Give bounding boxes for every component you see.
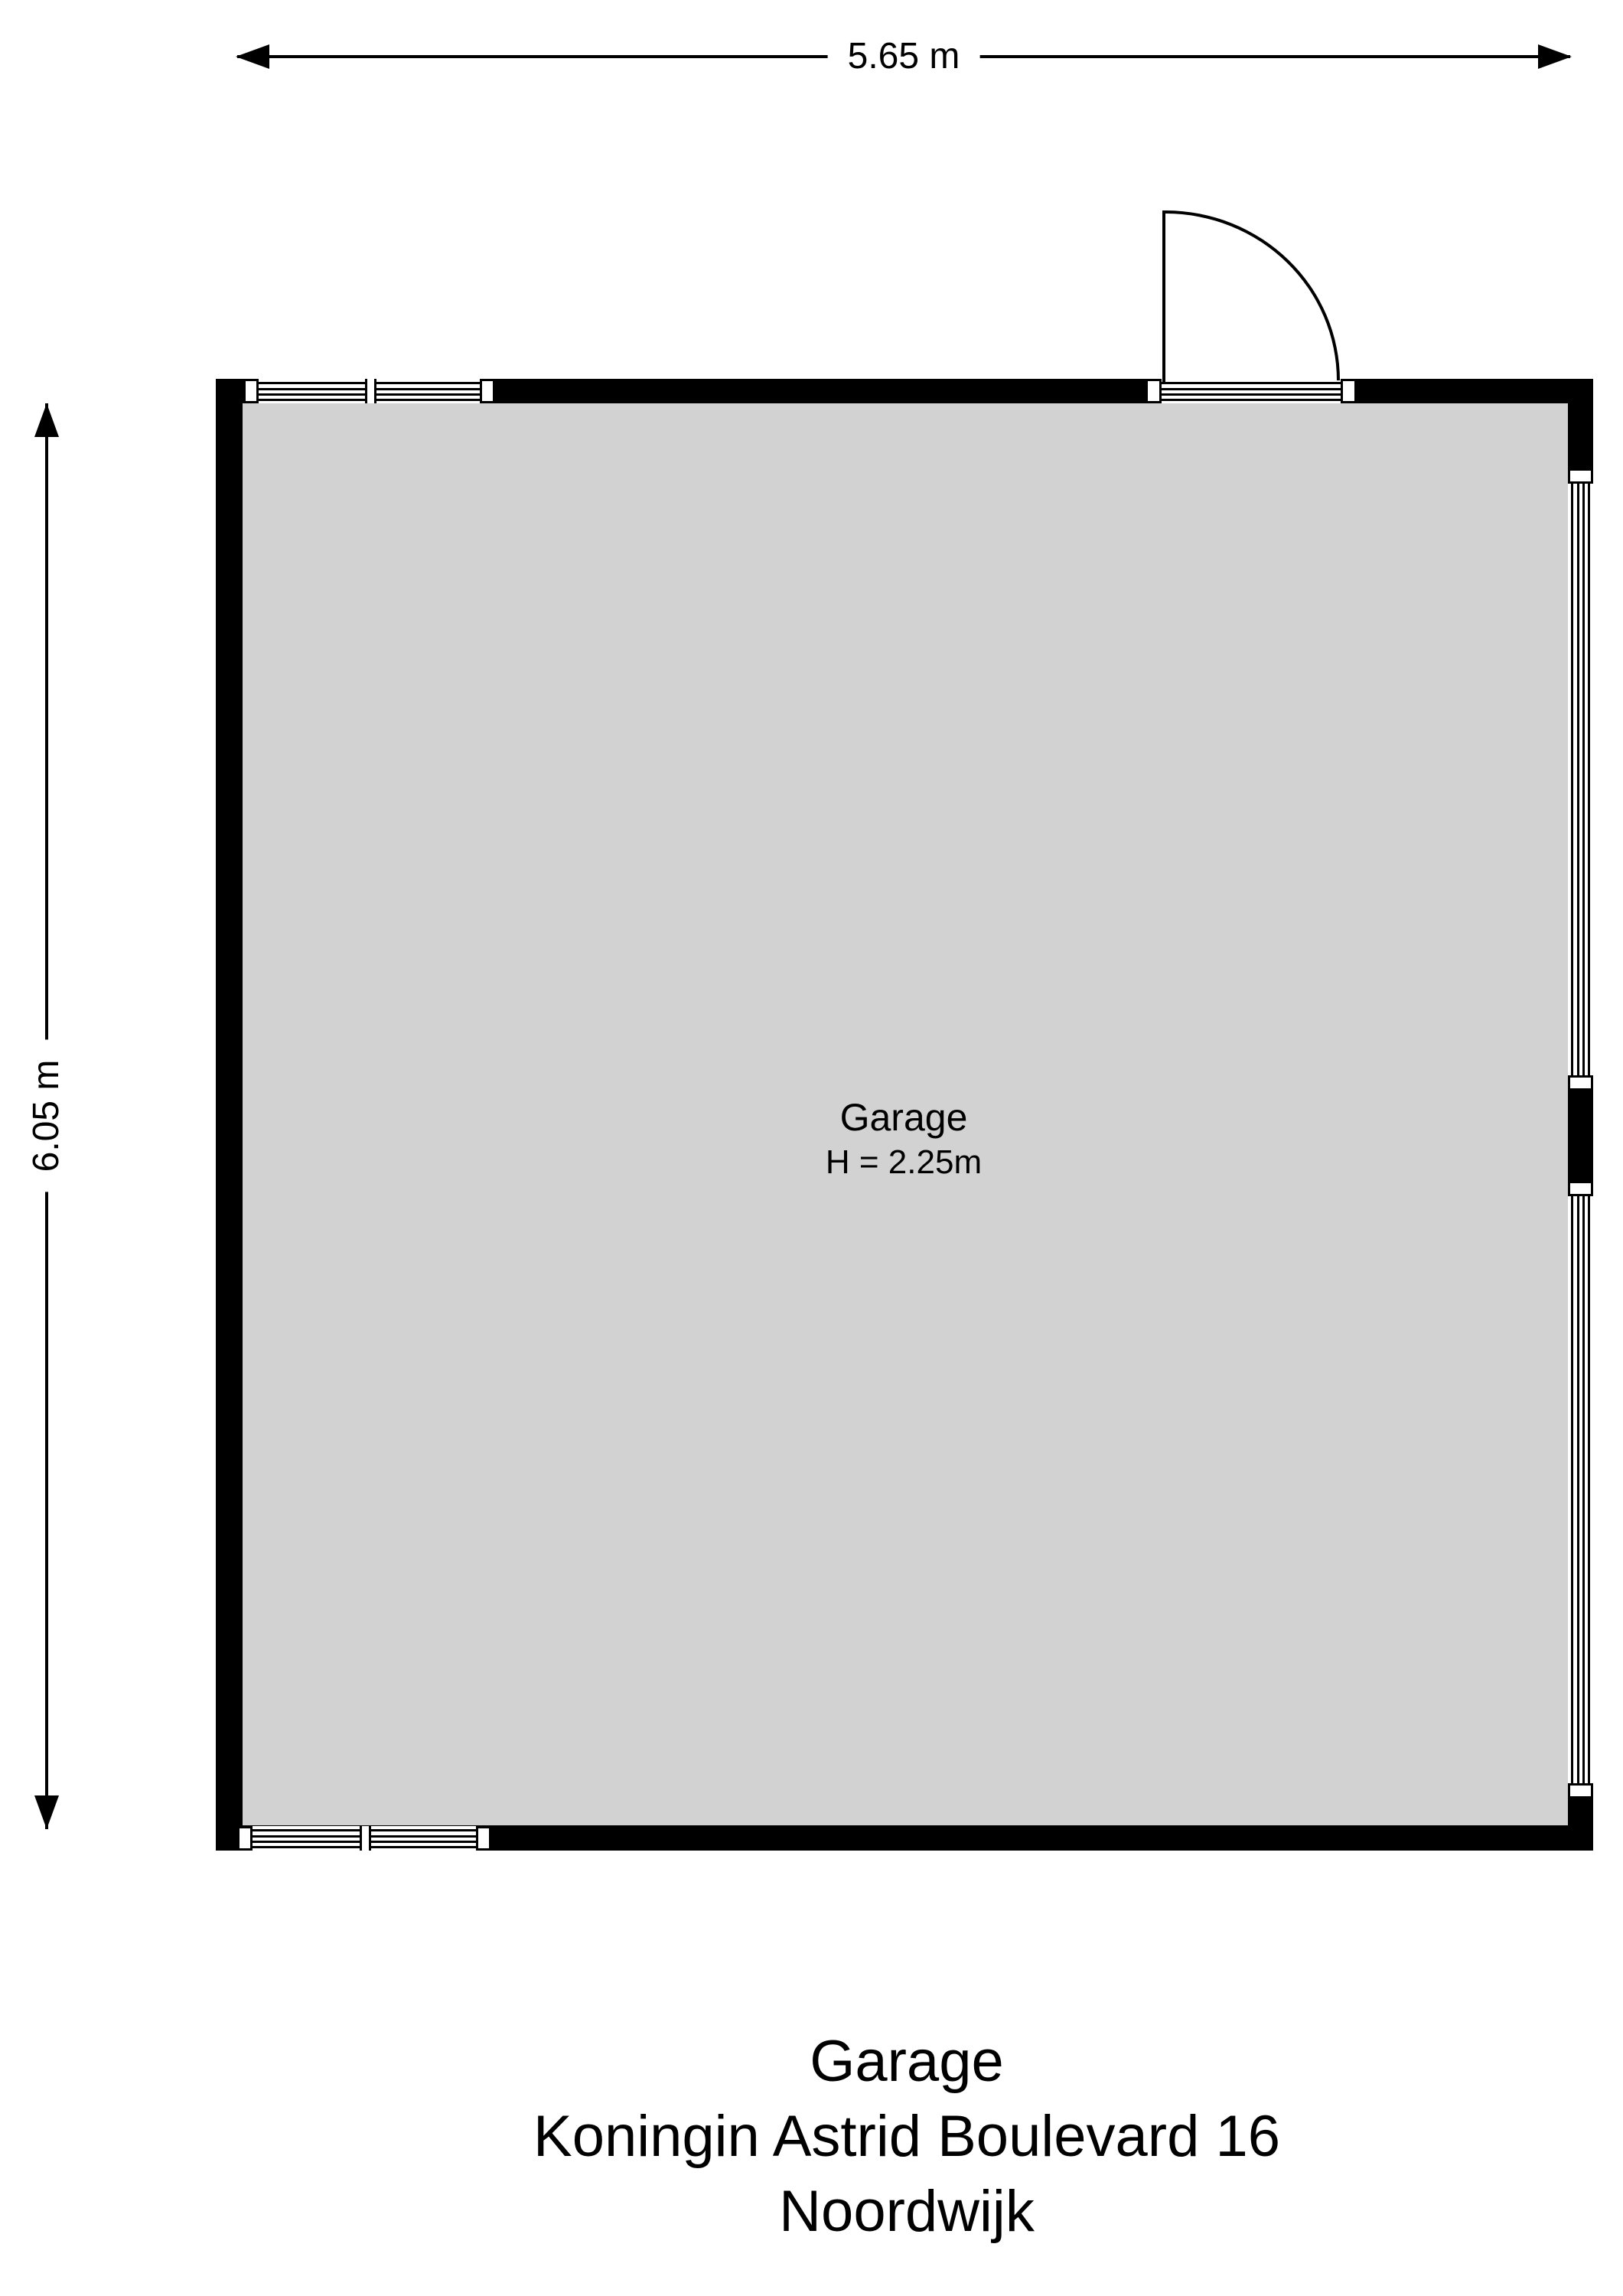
window-jamb	[243, 379, 259, 403]
wall-pier	[1568, 1091, 1593, 1181]
caption: Garage Koningin Astrid Boulevard 16 Noor…	[533, 2024, 1280, 2249]
ceiling-height-label: H = 2.25m	[826, 1143, 982, 1182]
window-right-wall	[1568, 468, 1593, 1799]
arrow-up-icon	[34, 403, 59, 437]
floor-plan-canvas: 5.65 m 6.05 m	[0, 0, 1623, 2296]
window-mullion	[360, 1826, 371, 1851]
door-threshold	[1162, 379, 1341, 403]
window-mullion	[365, 379, 376, 403]
room-name-label: Garage	[826, 1096, 982, 1139]
arrow-down-icon	[34, 1795, 59, 1829]
window-jamb	[1568, 1783, 1593, 1799]
door-swing-arc-icon	[1165, 210, 1340, 380]
door-jamb	[1146, 379, 1162, 403]
window-jamb	[1568, 1181, 1593, 1196]
room-label: Garage H = 2.25m	[826, 1096, 982, 1182]
window-glazing	[371, 1826, 476, 1851]
window-glazing	[1568, 1196, 1593, 1783]
window-jamb	[476, 1826, 491, 1851]
caption-address: Koningin Astrid Boulevard 16	[533, 2099, 1280, 2174]
window-glazing	[253, 1826, 360, 1851]
window-top-left	[243, 379, 495, 403]
arrow-right-icon	[1538, 44, 1572, 69]
arrow-left-icon	[236, 44, 269, 69]
left-dimension-label: 6.05 m	[25, 1040, 68, 1192]
window-jamb	[480, 379, 495, 403]
window-glazing	[1568, 484, 1593, 1075]
window-jamb	[1568, 468, 1593, 484]
window-jamb	[1568, 1075, 1593, 1091]
window-glazing	[376, 379, 480, 403]
window-glazing	[259, 379, 365, 403]
door-jamb	[1341, 379, 1357, 403]
entry-door	[1146, 379, 1357, 403]
top-dimension-label: 5.65 m	[828, 35, 980, 78]
window-jamb	[237, 1826, 253, 1851]
window-bottom-left	[237, 1826, 491, 1851]
caption-city: Noordwijk	[533, 2174, 1280, 2249]
caption-title: Garage	[533, 2024, 1280, 2099]
